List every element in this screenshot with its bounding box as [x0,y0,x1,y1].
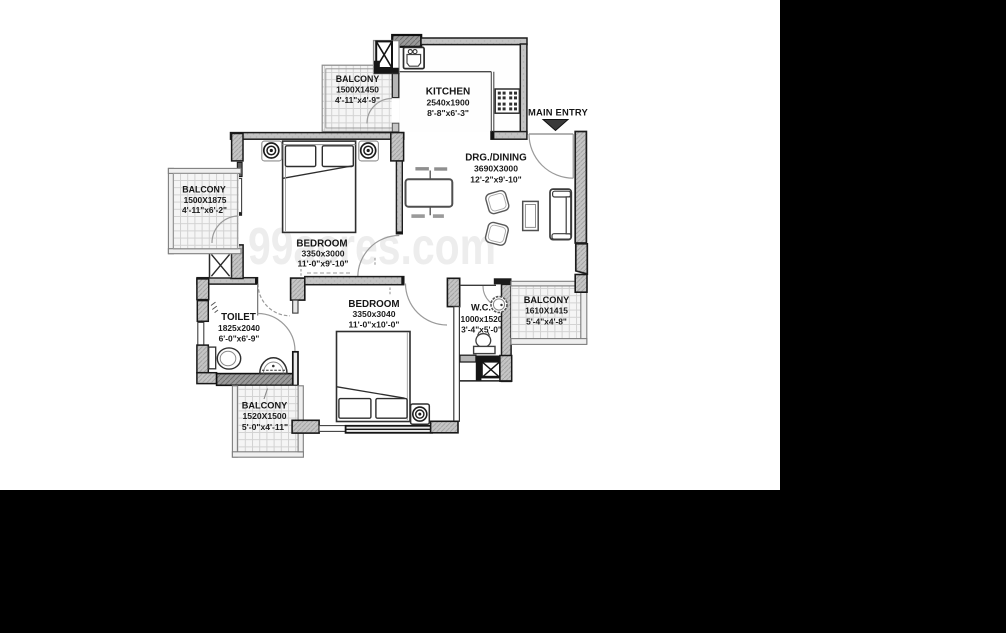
svg-text:BALCONY: BALCONY [242,400,287,410]
svg-text:1500X1875: 1500X1875 [184,195,227,205]
svg-text:5'-4"x4'-8": 5'-4"x4'-8" [526,317,567,327]
svg-text:3350x3040: 3350x3040 [352,309,395,319]
svg-text:4'-11"x6'-2": 4'-11"x6'-2" [182,205,227,215]
svg-text:BALCONY: BALCONY [336,74,380,84]
svg-text:W.C.: W.C. [471,303,491,313]
svg-text:4'-11"x4'-9": 4'-11"x4'-9" [335,95,380,105]
svg-text:11'-0"x9'-10": 11'-0"x9'-10" [298,259,349,269]
svg-text:BALCONY: BALCONY [182,185,226,195]
svg-text:1520X1500: 1520X1500 [243,411,287,421]
svg-text:8'-8"x6'-3": 8'-8"x6'-3" [427,108,469,118]
svg-text:MAIN ENTRY: MAIN ENTRY [528,107,589,118]
svg-text:DRG./DINING: DRG./DINING [465,153,527,164]
svg-text:12'-2"x9'-10": 12'-2"x9'-10" [470,175,521,185]
svg-text:2540x1900: 2540x1900 [426,98,469,108]
svg-text:1000x1520: 1000x1520 [461,314,503,324]
svg-text:3690X3000: 3690X3000 [474,164,518,174]
svg-text:1500X1450: 1500X1450 [336,85,379,95]
svg-text:TOILET: TOILET [221,312,256,323]
svg-text:11'-0"x10'-0": 11'-0"x10'-0" [349,320,400,330]
svg-text:3350x3000: 3350x3000 [301,249,344,259]
svg-text:6'-0"x6'-9": 6'-0"x6'-9" [219,334,260,344]
svg-text:BALCONY: BALCONY [524,295,569,305]
svg-text:1610X1415: 1610X1415 [525,306,568,316]
svg-text:5'-0"x4'-11": 5'-0"x4'-11" [242,422,288,432]
svg-text:1825x2040: 1825x2040 [218,323,260,333]
svg-text:3'-4"x5'-0": 3'-4"x5'-0" [461,325,502,335]
svg-text:KITCHEN: KITCHEN [426,87,470,98]
